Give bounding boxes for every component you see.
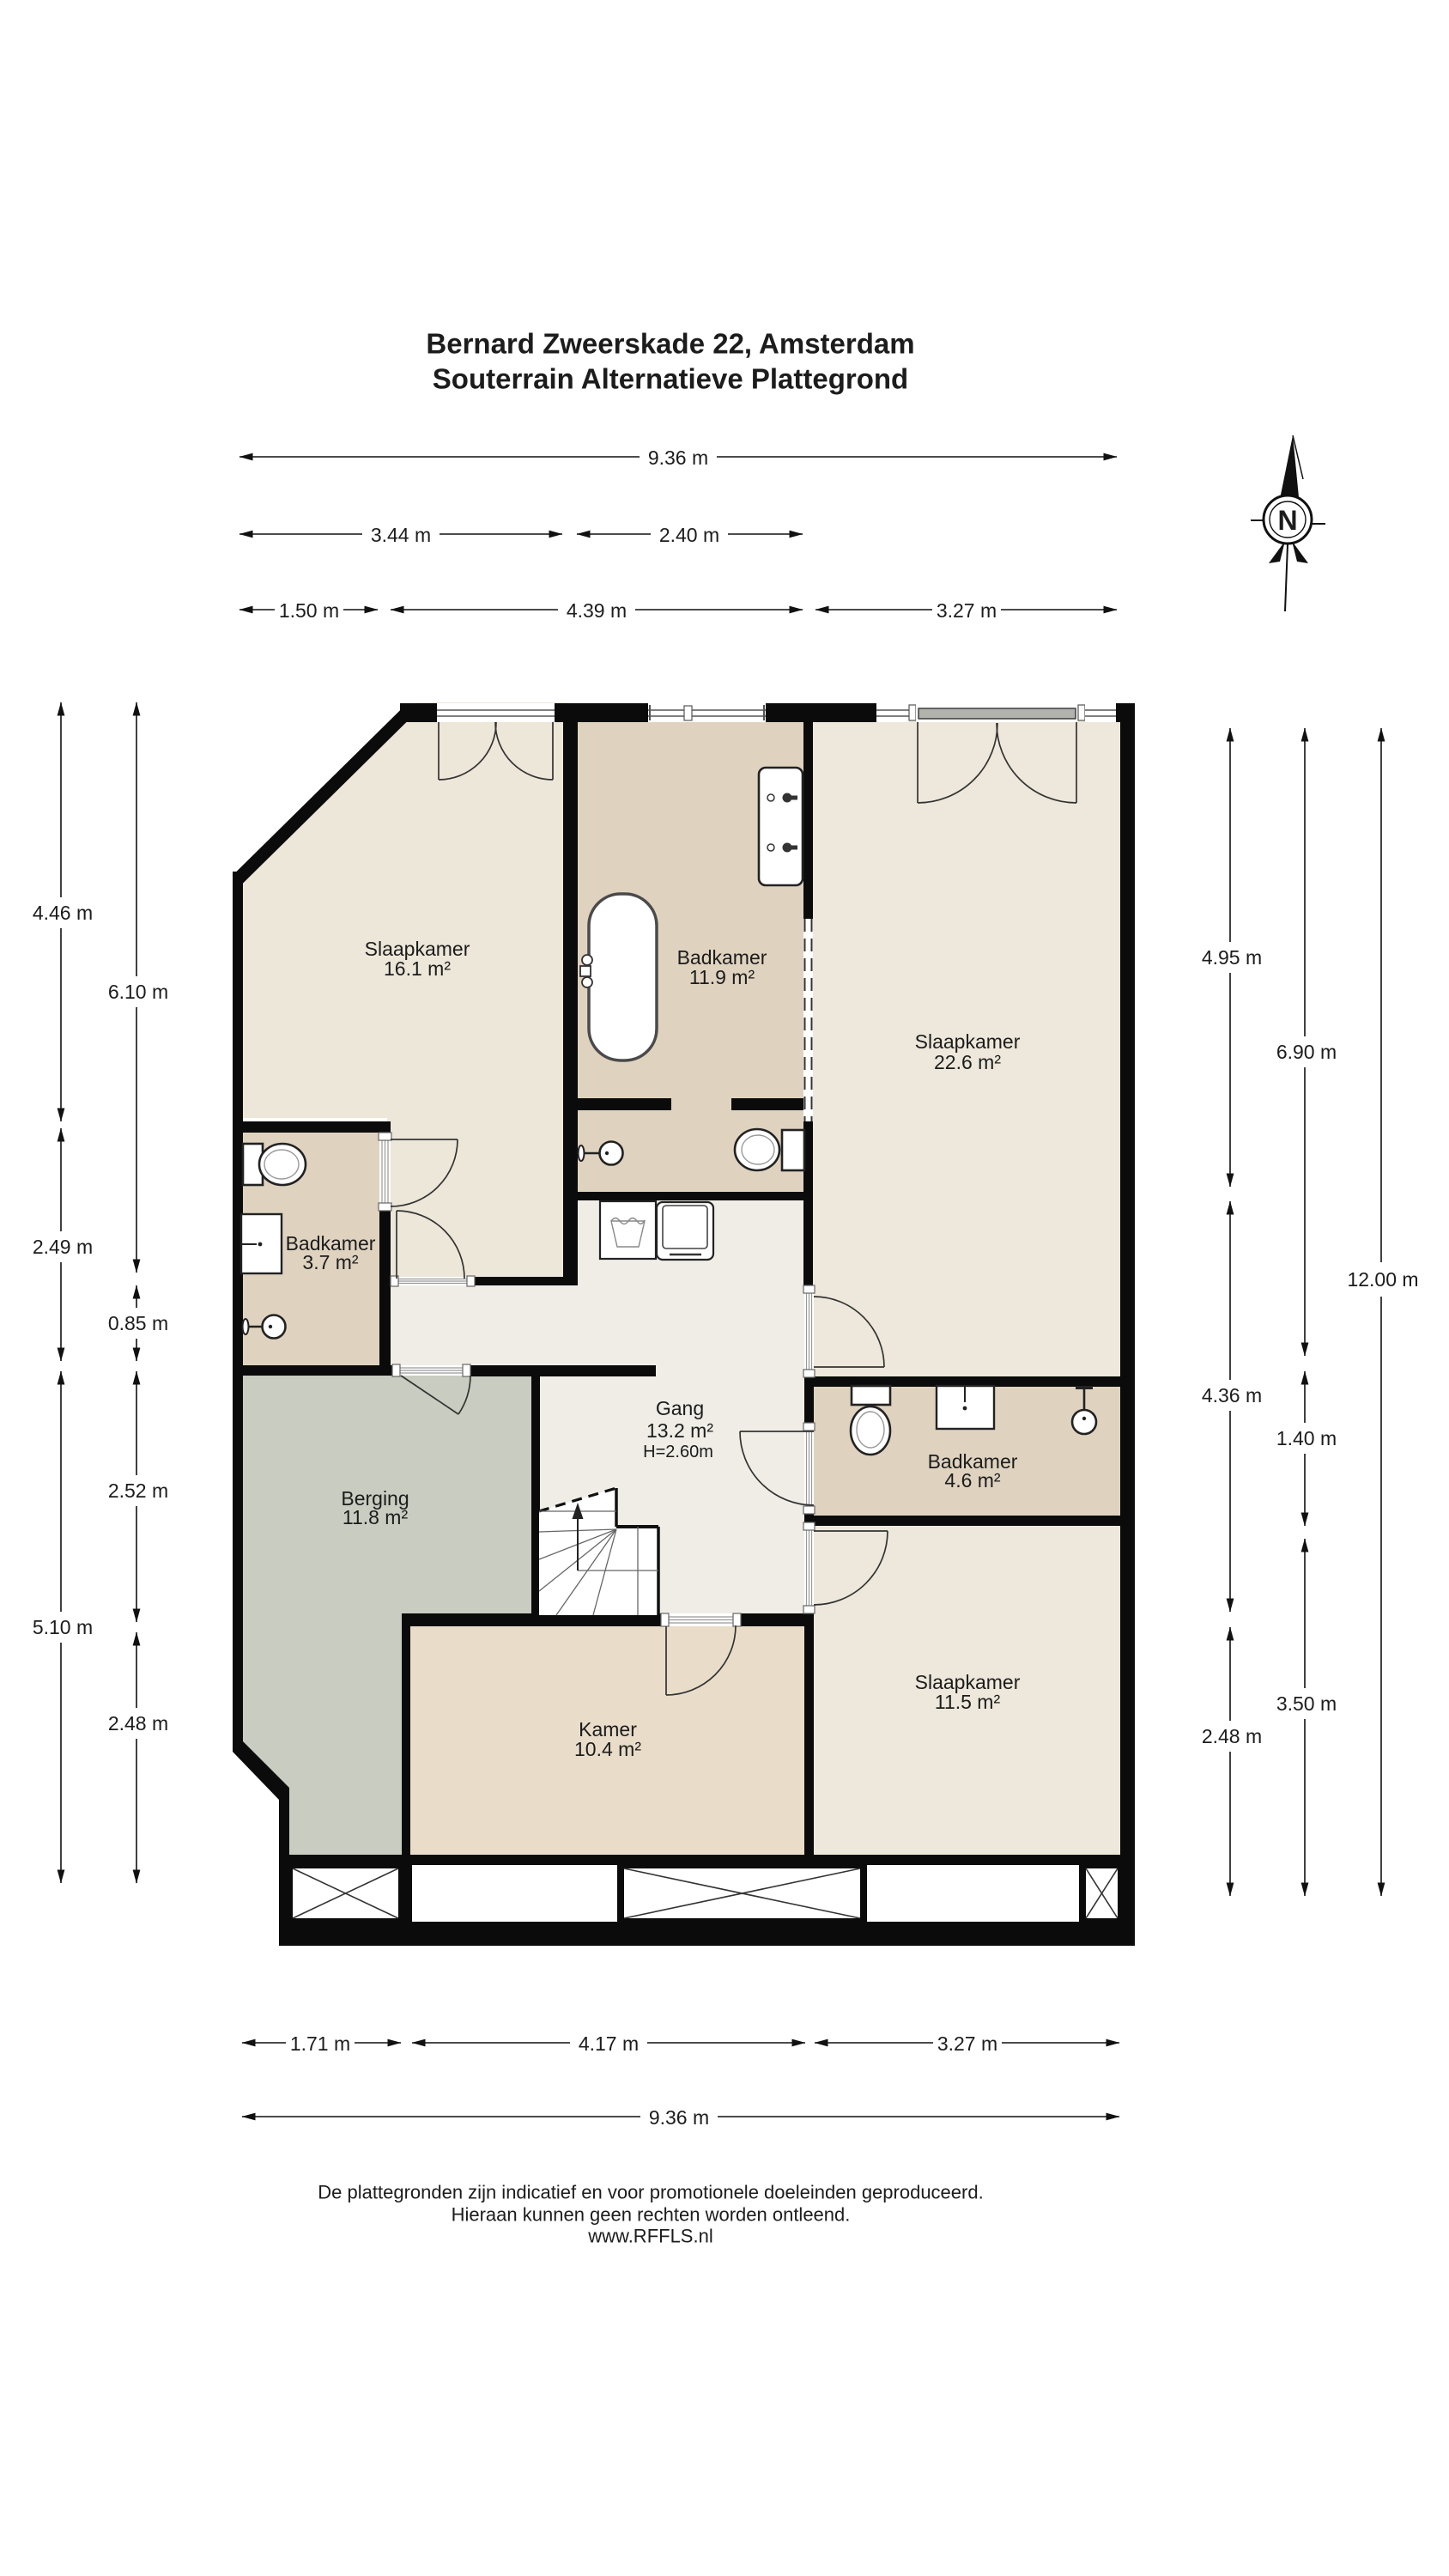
svg-text:11.5 m²: 11.5 m² (935, 1691, 1001, 1713)
svg-text:5.10 m: 5.10 m (33, 1616, 93, 1638)
svg-text:2.52 m: 2.52 m (108, 1479, 168, 1502)
svg-text:Hieraan kunnen geen rechten wo: Hieraan kunnen geen rechten worden ontle… (452, 2204, 851, 2226)
svg-text:1.50 m: 1.50 m (279, 599, 339, 622)
svg-text:1.71 m: 1.71 m (290, 2032, 350, 2055)
svg-text:4.95 m: 4.95 m (1202, 946, 1262, 969)
svg-text:6.10 m: 6.10 m (108, 981, 168, 1003)
svg-text:6.90 m: 6.90 m (1276, 1041, 1337, 1063)
svg-text:3.27 m: 3.27 m (937, 2032, 997, 2055)
svg-text:Gang: Gang (656, 1397, 704, 1419)
svg-text:13.2 m²: 13.2 m² (646, 1419, 713, 1442)
svg-text:N: N (1277, 505, 1297, 536)
svg-text:11.8 m²: 11.8 m² (343, 1506, 409, 1528)
svg-text:2.49 m: 2.49 m (33, 1236, 93, 1258)
svg-text:12.00 m: 12.00 m (1347, 1268, 1418, 1291)
svg-text:4.6 m²: 4.6 m² (944, 1469, 1001, 1492)
svg-text:16.1 m²: 16.1 m² (384, 957, 451, 980)
svg-text:3.27 m: 3.27 m (937, 599, 997, 622)
svg-text:2.40 m: 2.40 m (659, 524, 719, 546)
svg-text:Bernard Zweerskade 22, Amsterd: Bernard Zweerskade 22, Amsterdam (426, 328, 914, 360)
svg-text:2.48 m: 2.48 m (1202, 1725, 1262, 1747)
svg-text:2.48 m: 2.48 m (108, 1712, 168, 1735)
svg-text:De plattegronden zijn indicati: De plattegronden zijn indicatief en voor… (318, 2182, 983, 2203)
svg-text:4.46 m: 4.46 m (33, 902, 93, 924)
svg-text:11.9 m²: 11.9 m² (689, 966, 755, 988)
svg-text:0.85 m: 0.85 m (108, 1312, 168, 1334)
svg-text:3.44 m: 3.44 m (371, 524, 431, 546)
svg-text:www.RFFLS.nl: www.RFFLS.nl (587, 2226, 712, 2247)
svg-text:22.6 m²: 22.6 m² (934, 1051, 1001, 1073)
svg-text:4.17 m: 4.17 m (579, 2032, 639, 2055)
svg-text:9.36 m: 9.36 m (648, 447, 708, 469)
svg-text:9.36 m: 9.36 m (649, 2106, 709, 2129)
svg-text:Slaapkamer: Slaapkamer (915, 1030, 1021, 1053)
svg-text:4.39 m: 4.39 m (567, 599, 627, 622)
svg-text:10.4 m²: 10.4 m² (574, 1738, 641, 1760)
svg-text:4.36 m: 4.36 m (1202, 1384, 1262, 1406)
svg-text:Souterrain Alternatieve Platte: Souterrain Alternatieve Plattegrond (433, 363, 908, 395)
svg-text:3.50 m: 3.50 m (1276, 1692, 1337, 1715)
svg-text:1.40 m: 1.40 m (1276, 1427, 1337, 1449)
svg-text:3.7 m²: 3.7 m² (302, 1251, 359, 1273)
svg-text:H=2.60m: H=2.60m (643, 1443, 713, 1461)
